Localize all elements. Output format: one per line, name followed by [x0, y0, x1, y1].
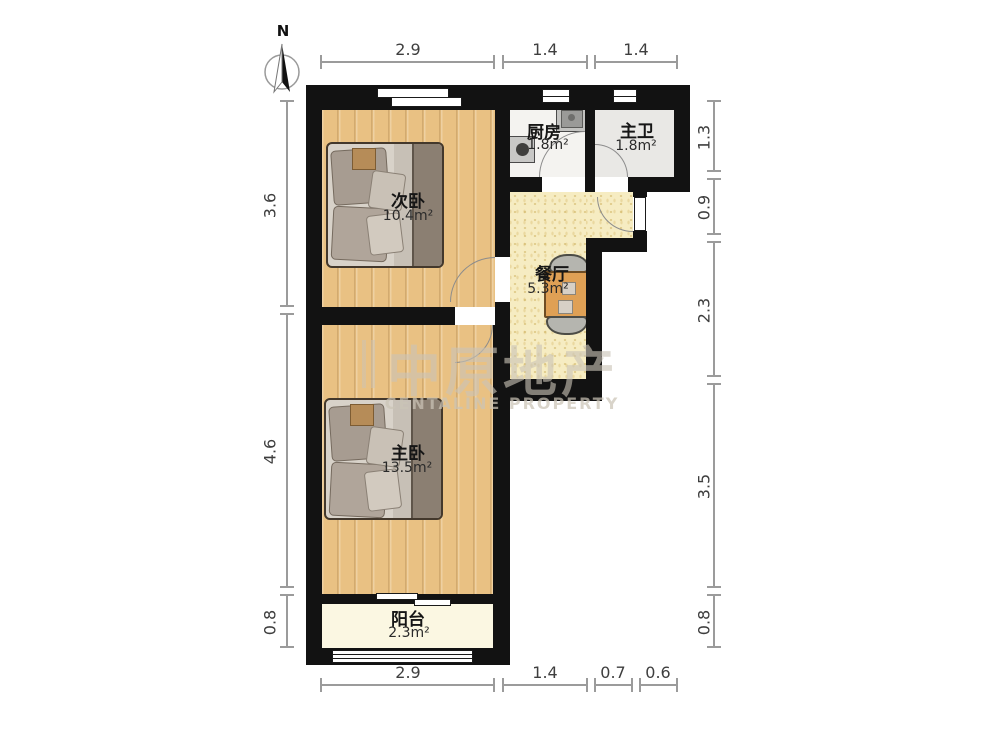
kitchen-window — [542, 89, 570, 103]
bed-cushion — [350, 404, 374, 426]
wall-right-upper — [674, 85, 690, 192]
dim-line — [286, 313, 288, 588]
dim-label: 0.7 — [593, 663, 633, 682]
bathroom-area: 1.8m² — [606, 138, 666, 154]
dim-label: 3.6 — [261, 186, 280, 226]
wall-dining-right — [586, 238, 602, 379]
table-plate — [558, 300, 573, 314]
wall-bedrooms-divider — [306, 307, 455, 325]
bed-cushion — [352, 148, 376, 170]
dim-label: 2.9 — [388, 663, 428, 682]
dim-label: 0.8 — [695, 603, 714, 643]
balcony-sliding-door — [376, 593, 418, 600]
wall-bedrooms-divider-stub — [495, 307, 510, 325]
dim-label: 4.6 — [261, 432, 280, 472]
north-arrow-icon — [260, 40, 305, 100]
balcony-area: 2.3m² — [369, 625, 449, 641]
entry-door — [634, 197, 646, 231]
dim-line — [286, 100, 288, 307]
balcony-window — [332, 650, 473, 663]
wall-kitchen-bath-divider — [585, 110, 595, 192]
wall-entry-stub-bottom — [633, 231, 647, 238]
dim-label: 0.6 — [638, 663, 678, 682]
dim-label: 1.4 — [616, 40, 656, 59]
floor-plan: 次卧 10.4m² 厨房 1.8m² 主卫 1.8m² 餐厅 5.3m² 主卧 … — [0, 0, 1000, 750]
dim-label: 1.4 — [525, 663, 565, 682]
north-label: N — [272, 22, 294, 40]
wall-bath-bottom — [628, 177, 690, 192]
dim-line — [594, 61, 678, 63]
dim-label: 1.4 — [525, 40, 565, 59]
dining-area: 5.3m² — [518, 281, 578, 297]
dim-line — [594, 684, 633, 686]
wall-dining-bottom — [493, 379, 602, 401]
dim-label: 2.3 — [695, 291, 714, 331]
dim-label: 0.8 — [261, 603, 280, 643]
dim-line — [639, 684, 678, 686]
master-bedroom-area: 13.5m² — [367, 460, 447, 476]
secondary-bedroom-area: 10.4m² — [368, 208, 448, 224]
dim-line — [320, 61, 495, 63]
dim-label: 1.3 — [695, 118, 714, 158]
wall-master-bedroom-right — [493, 325, 510, 663]
dim-line — [502, 61, 588, 63]
bathroom-window — [613, 89, 637, 103]
wall-kitchen-bottom — [495, 177, 542, 192]
dim-label: 2.9 — [388, 40, 428, 59]
kitchen-area: 1.8m² — [518, 137, 578, 153]
wall-left — [306, 85, 322, 663]
dim-line — [320, 684, 495, 686]
dim-label: 3.5 — [695, 467, 714, 507]
dim-line — [502, 684, 588, 686]
dim-label: 0.9 — [695, 188, 714, 228]
secondary-bedroom-window — [391, 97, 462, 107]
dim-line — [286, 594, 288, 648]
